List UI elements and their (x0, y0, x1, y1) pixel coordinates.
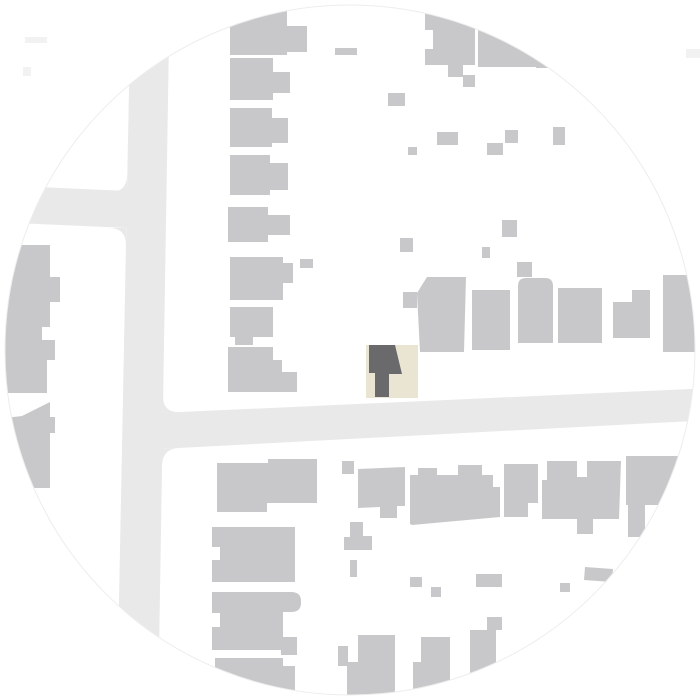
building-footprint (431, 587, 441, 597)
building-footprint (410, 577, 422, 587)
building-footprint (517, 262, 532, 277)
building-footprint (338, 646, 348, 666)
building-footprint (613, 302, 650, 338)
building-footprint (350, 560, 357, 577)
faded-building-fragment (25, 37, 47, 43)
building-footprint (487, 617, 502, 630)
faded-building-fragment (23, 67, 31, 76)
building-footprint (502, 220, 517, 237)
building-footprint (553, 127, 565, 145)
site-plan-map (0, 0, 700, 700)
building-footprint (212, 527, 295, 582)
building-footprint (342, 461, 354, 474)
map-svg (0, 0, 700, 700)
building-footprint (558, 288, 602, 343)
building-footprint (476, 574, 502, 587)
building-footprint (505, 130, 518, 143)
building-footprint (403, 292, 417, 308)
map-background (0, 0, 700, 700)
building-footprint (518, 278, 553, 343)
building-footprint (487, 143, 503, 155)
building-footprint (560, 583, 570, 592)
building-footprint (463, 75, 475, 87)
building-footprint (300, 259, 313, 268)
building-footprint (388, 93, 405, 106)
building-footprint (632, 290, 650, 302)
building-footprint (417, 277, 466, 352)
building-footprint (400, 238, 413, 252)
building-footprint (408, 147, 417, 155)
building-footprint (482, 247, 490, 258)
faded-building-fragment (686, 49, 700, 58)
building-footprint (437, 132, 458, 145)
building-footprint (472, 290, 510, 350)
building-footprint (335, 48, 357, 55)
